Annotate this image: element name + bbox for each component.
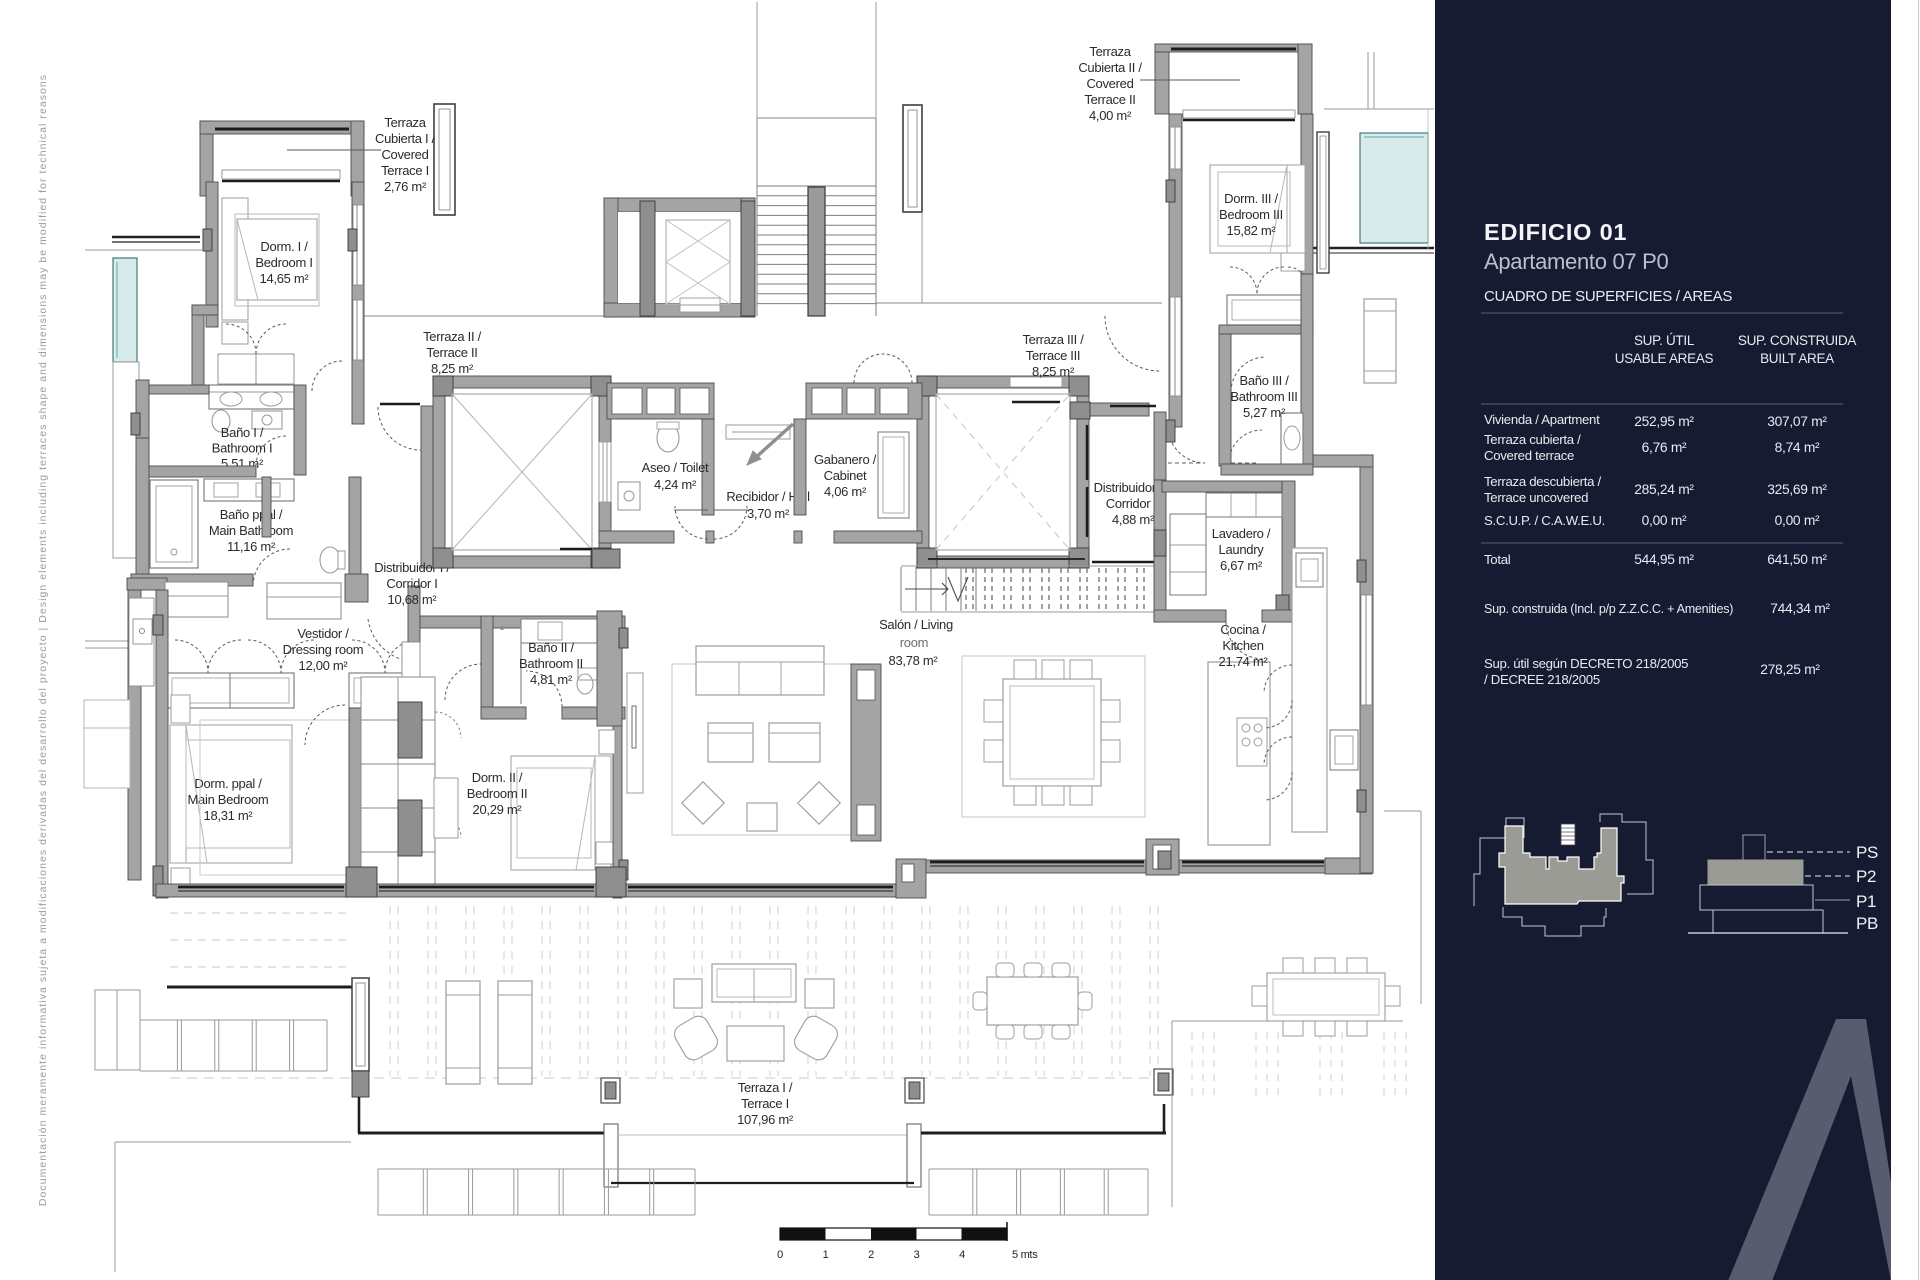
svg-text:Gabanero /: Gabanero / (814, 452, 877, 467)
svg-text:Terraza descubierta /: Terraza descubierta / (1484, 474, 1601, 489)
svg-text:Cubierta I /: Cubierta I / (375, 131, 436, 146)
svg-text:21,74 m²: 21,74 m² (1219, 654, 1269, 669)
svg-text:Kitchen: Kitchen (1222, 638, 1263, 653)
svg-text:4,06 m²: 4,06 m² (824, 484, 867, 499)
svg-text:Salón / Living: Salón / Living (879, 617, 953, 632)
svg-text:Aseo / Toilet: Aseo / Toilet (642, 460, 709, 475)
svg-text:Covered terrace: Covered terrace (1484, 448, 1574, 463)
svg-text:S.C.U.P. / C.A.W.E.U.: S.C.U.P. / C.A.W.E.U. (1484, 513, 1605, 528)
svg-text:Vivienda / Apartment: Vivienda / Apartment (1484, 412, 1600, 427)
svg-text:P1: P1 (1856, 892, 1876, 911)
svg-text:Bedroom III: Bedroom III (1219, 207, 1283, 222)
svg-text:Terraza: Terraza (1089, 44, 1131, 59)
svg-text:PS: PS (1856, 843, 1878, 862)
svg-text:PB: PB (1856, 914, 1878, 933)
svg-text:4,81 m²: 4,81 m² (530, 672, 573, 687)
svg-text:Corridor I: Corridor I (386, 576, 437, 591)
svg-text:285,24 m²: 285,24 m² (1634, 482, 1694, 497)
svg-text:0,00 m²: 0,00 m² (1775, 513, 1820, 528)
svg-text:USABLE AREAS: USABLE AREAS (1615, 351, 1714, 366)
svg-text:4,88 m²: 4,88 m² (1112, 512, 1155, 527)
svg-text:0,00 m²: 0,00 m² (1642, 513, 1687, 528)
svg-text:6,67 m²: 6,67 m² (1220, 558, 1263, 573)
svg-text:14,65 m²: 14,65 m² (260, 271, 310, 286)
svg-text:4,24 m²: 4,24 m² (654, 477, 697, 492)
svg-text:1: 1 (823, 1249, 829, 1261)
svg-text:Terraza: Terraza (384, 115, 426, 130)
svg-text:2,76 m²: 2,76 m² (384, 179, 427, 194)
svg-text:5,27 m²: 5,27 m² (1243, 405, 1286, 420)
svg-text:Terrace II: Terrace II (1084, 92, 1135, 107)
svg-text:278,25 m²: 278,25 m² (1760, 662, 1820, 677)
svg-text:8,74 m²: 8,74 m² (1775, 440, 1820, 455)
svg-text:11,16 m²: 11,16 m² (227, 539, 276, 554)
svg-text:Terrace I: Terrace I (741, 1096, 789, 1111)
svg-text:Apartamento 07 P0: Apartamento 07 P0 (1484, 249, 1669, 274)
svg-text:6,76 m²: 6,76 m² (1642, 440, 1687, 455)
svg-text:Dorm. I /: Dorm. I / (260, 239, 308, 254)
svg-text:Cabinet: Cabinet (824, 468, 867, 483)
svg-text:Terraza cubierta /: Terraza cubierta / (1484, 432, 1581, 447)
svg-text:Laundry: Laundry (1219, 542, 1265, 557)
svg-text:Bedroom I: Bedroom I (255, 255, 312, 270)
svg-text:Dorm. II /: Dorm. II / (472, 770, 523, 785)
svg-text:P2: P2 (1856, 867, 1876, 886)
svg-text:Terraza I /: Terraza I / (738, 1080, 793, 1095)
svg-text:Sup. útil según DECRETO 218/20: Sup. útil según DECRETO 218/2005 (1484, 656, 1688, 671)
svg-text:BUILT AREA: BUILT AREA (1760, 351, 1834, 366)
svg-text:Bathroom I: Bathroom I (212, 441, 273, 456)
svg-text:307,07 m²: 307,07 m² (1767, 414, 1827, 429)
svg-text:15,82 m²: 15,82 m² (1227, 223, 1277, 238)
svg-text:Terrace III: Terrace III (1026, 348, 1081, 363)
svg-text:Main Bathroom: Main Bathroom (209, 523, 293, 538)
svg-text:Corridor II: Corridor II (1106, 496, 1161, 511)
svg-text:12,00 m²: 12,00 m² (299, 658, 349, 673)
svg-text:Covered: Covered (1086, 76, 1133, 91)
svg-text:8,25 m²: 8,25 m² (1032, 364, 1075, 379)
svg-text:252,95 m²: 252,95 m² (1634, 414, 1694, 429)
svg-text:18,31 m²: 18,31 m² (204, 808, 254, 823)
svg-text:Total: Total (1484, 552, 1511, 567)
svg-text:Vestidor /: Vestidor / (297, 626, 349, 641)
svg-text:Covered: Covered (381, 147, 428, 162)
svg-text:4: 4 (959, 1249, 965, 1261)
svg-text:Sup. construida (Incl. p/p Z.Z: Sup. construida (Incl. p/p Z.Z.C.C. + Am… (1484, 602, 1733, 616)
svg-text:641,50 m²: 641,50 m² (1767, 552, 1827, 567)
svg-text:3: 3 (914, 1249, 920, 1261)
svg-text:5 mts: 5 mts (1012, 1249, 1038, 1261)
svg-text:EDIFICIO 01: EDIFICIO 01 (1484, 219, 1627, 245)
svg-text:Lavadero /: Lavadero / (1212, 526, 1271, 541)
svg-text:Dressing room: Dressing room (283, 642, 364, 657)
svg-text:744,34 m²: 744,34 m² (1770, 601, 1830, 616)
svg-text:4,00 m²: 4,00 m² (1089, 108, 1132, 123)
svg-text:Terrace II: Terrace II (426, 345, 477, 360)
svg-text:Baño ppal /: Baño ppal / (220, 507, 283, 522)
svg-text:Terrace uncovered: Terrace uncovered (1484, 490, 1588, 505)
svg-text:107,96 m²: 107,96 m² (737, 1112, 794, 1127)
svg-text:Baño III /: Baño III / (1239, 373, 1289, 388)
svg-text:Bathroom II: Bathroom II (519, 656, 583, 671)
svg-text:325,69 m²: 325,69 m² (1767, 482, 1827, 497)
svg-text:SUP. ÚTIL: SUP. ÚTIL (1634, 333, 1695, 348)
svg-text:Bathroom III: Bathroom III (1230, 389, 1297, 404)
svg-text:Cocina /: Cocina / (1220, 622, 1266, 637)
svg-text:0: 0 (777, 1249, 783, 1261)
svg-text:3,70 m²: 3,70 m² (747, 506, 790, 521)
svg-text:2: 2 (868, 1249, 874, 1261)
svg-text:Bedroom II: Bedroom II (467, 786, 528, 801)
svg-text:CUADRO DE SUPERFICIES / AREAS: CUADRO DE SUPERFICIES / AREAS (1484, 288, 1732, 305)
svg-text:Documentación meramente inform: Documentación meramente informativa suje… (37, 74, 49, 1206)
svg-text:Cubierta II /: Cubierta II / (1078, 60, 1142, 75)
svg-text:8,25 m²: 8,25 m² (431, 361, 474, 376)
svg-text:544,95 m²: 544,95 m² (1634, 552, 1694, 567)
svg-text:Terraza III /: Terraza III / (1022, 332, 1084, 347)
svg-text:room: room (900, 635, 928, 650)
svg-text:83,78 m²: 83,78 m² (889, 653, 939, 668)
svg-text:Dorm. III /: Dorm. III / (1224, 191, 1278, 206)
svg-text:20,29 m²: 20,29 m² (473, 802, 523, 817)
svg-text:Dorm. ppal /: Dorm. ppal / (194, 776, 262, 791)
svg-text:10,68 m²: 10,68 m² (388, 592, 438, 607)
svg-text:Terrace I: Terrace I (381, 163, 429, 178)
svg-text:SUP. CONSTRUIDA: SUP. CONSTRUIDA (1738, 333, 1857, 348)
svg-text:Baño I /: Baño I / (221, 425, 264, 440)
svg-text:Baño II /: Baño II / (528, 640, 574, 655)
svg-text:Terraza II /: Terraza II / (423, 329, 481, 344)
svg-text:/ DECREE 218/2005: / DECREE 218/2005 (1484, 672, 1600, 687)
